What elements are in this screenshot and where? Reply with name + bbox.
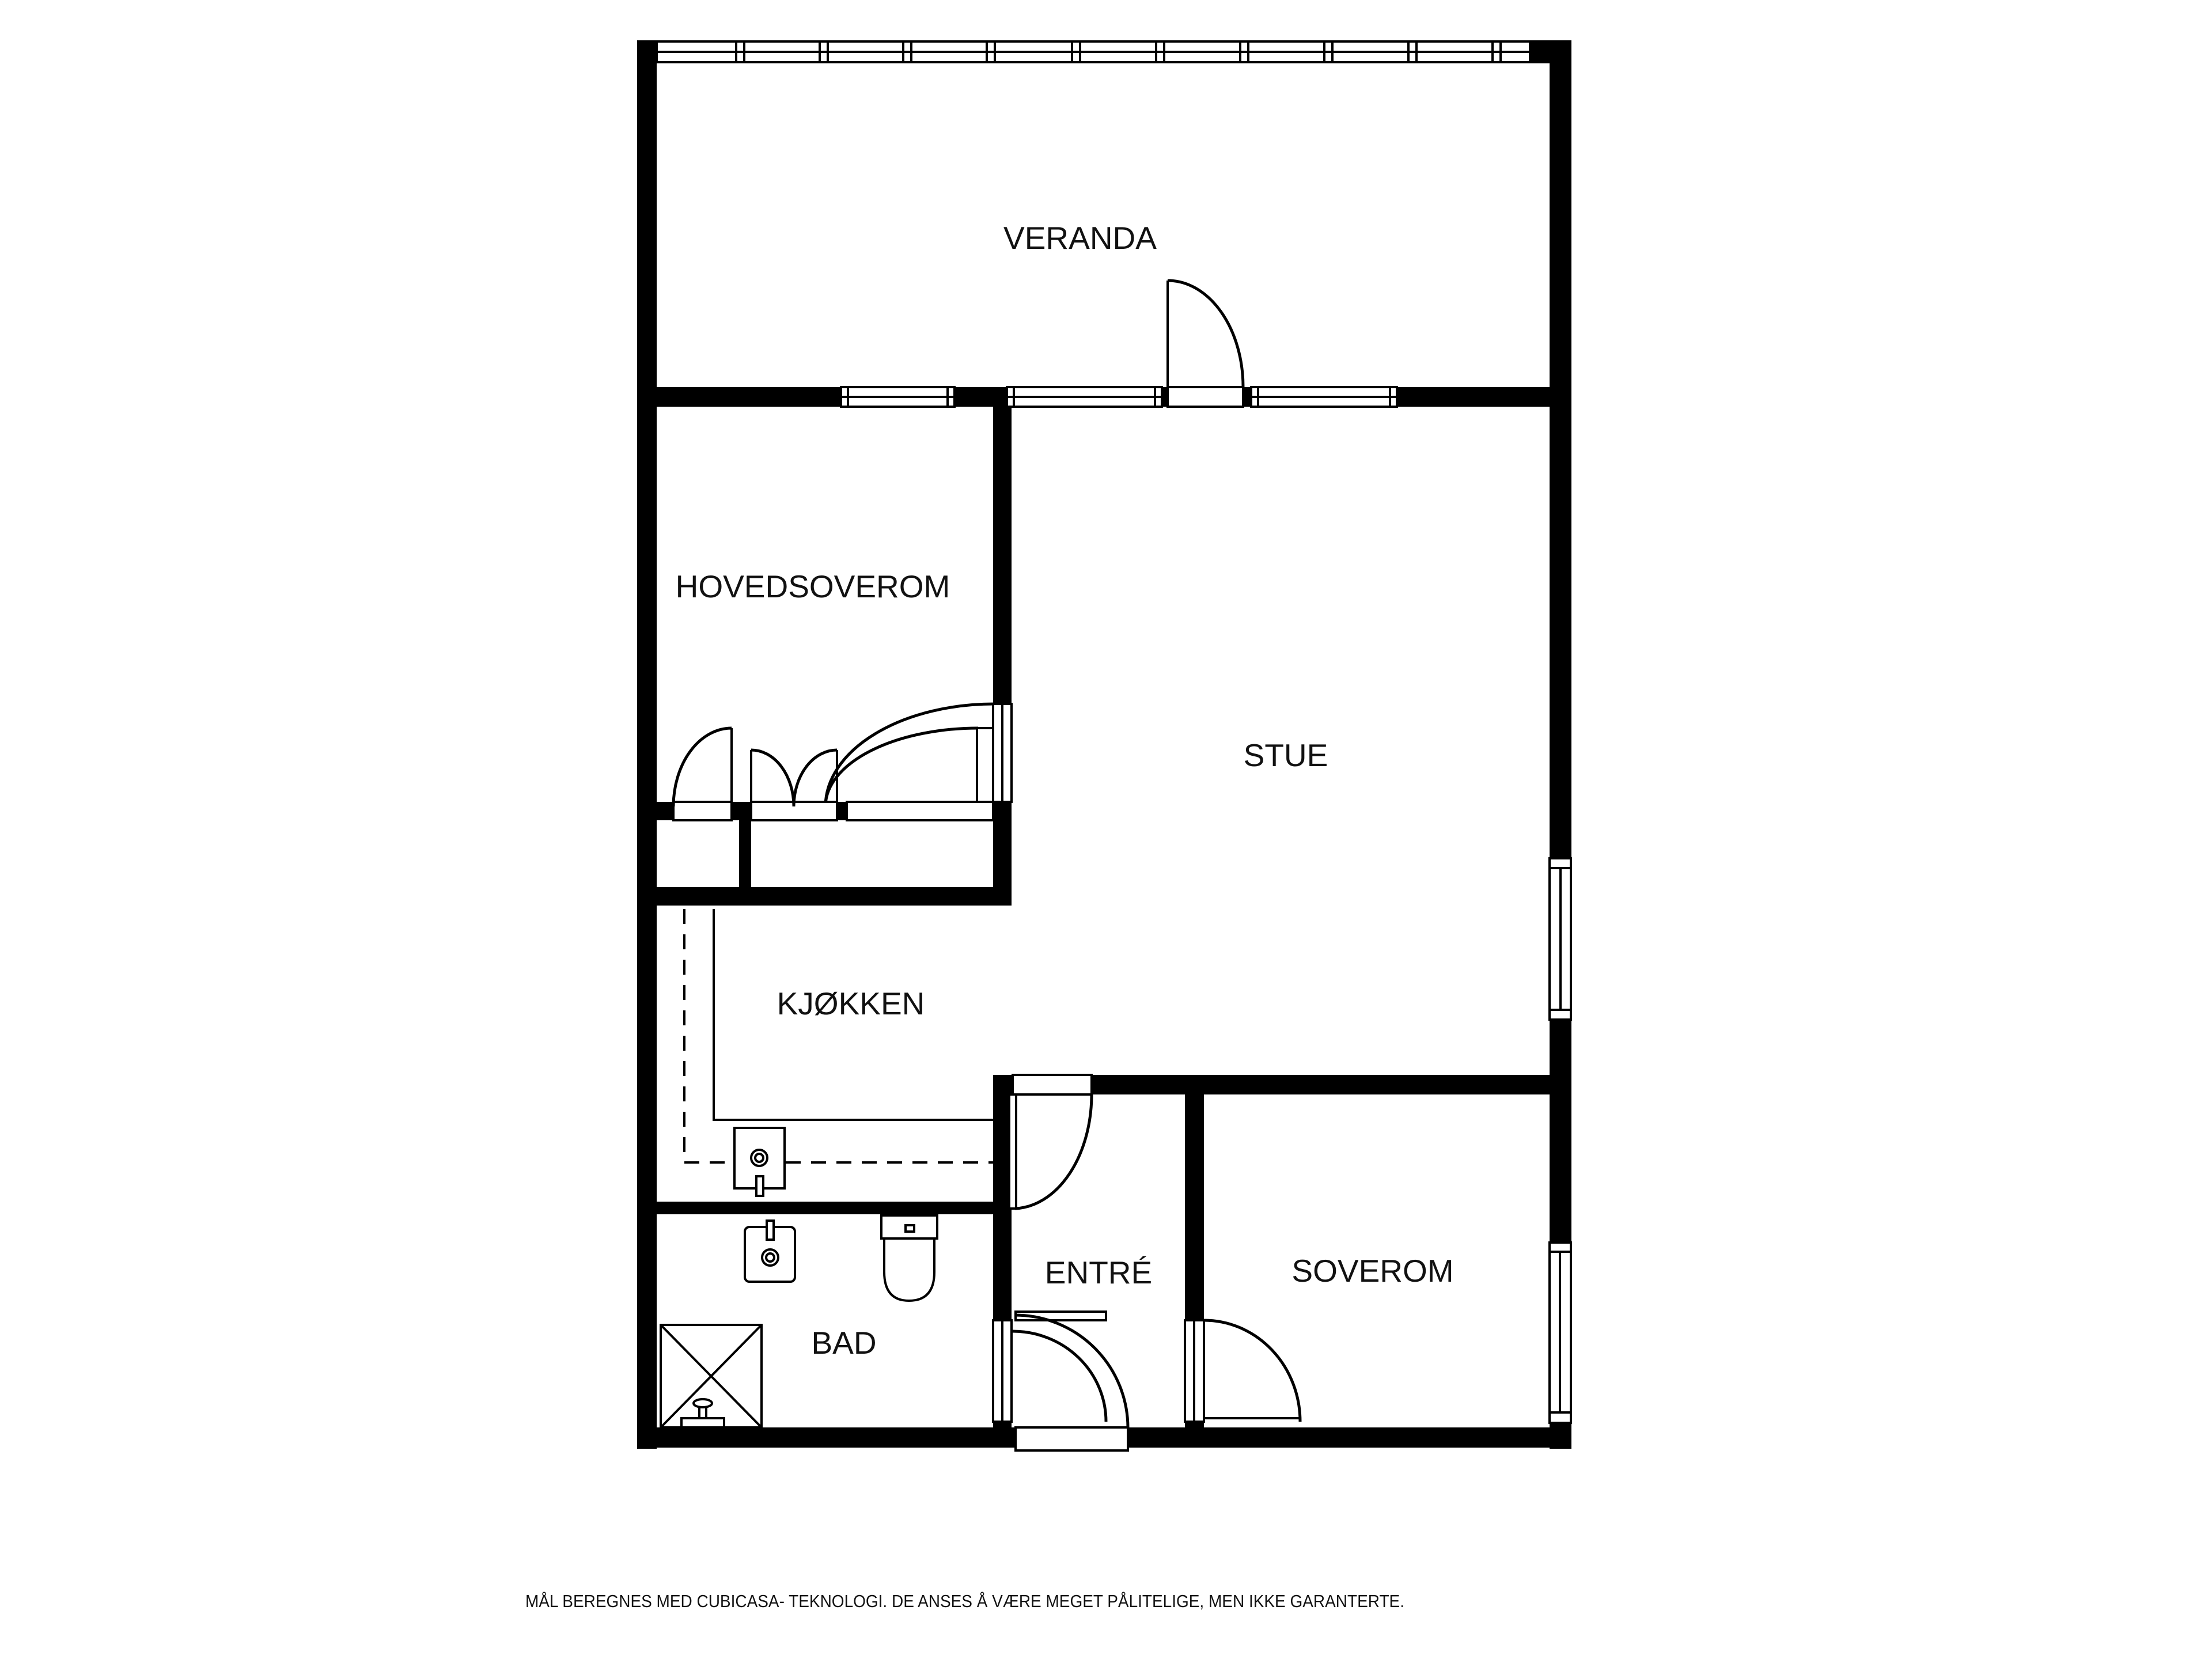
kitchen-fixtures bbox=[684, 909, 993, 1196]
room-label-stue: STUE bbox=[1244, 737, 1328, 773]
disclaimer-text: MÅL BEREGNES MED CUBICASA- TEKNOLOGI. DE… bbox=[525, 1591, 1404, 1611]
room-label-kjokken: KJØKKEN bbox=[777, 986, 925, 1021]
stue-veranda-window-a bbox=[841, 387, 955, 407]
room-label-bad: BAD bbox=[811, 1325, 876, 1361]
closet-door-left bbox=[673, 728, 732, 820]
stue-veranda-window-c bbox=[1251, 387, 1397, 407]
bathroom-fixtures bbox=[661, 1215, 937, 1427]
stue-window bbox=[1550, 858, 1571, 1020]
hovedsoverom-door bbox=[825, 704, 1012, 820]
room-label-veranda: VERANDA bbox=[1003, 220, 1157, 256]
room-label-entre: ENTRÉ bbox=[1045, 1255, 1152, 1290]
entrance-door bbox=[1016, 1315, 1128, 1450]
shower-icon bbox=[661, 1325, 762, 1427]
veranda-window-strip bbox=[657, 41, 1530, 62]
soverom-window bbox=[1550, 1243, 1571, 1423]
wall-cabinets-dashed-outline bbox=[684, 909, 993, 1162]
room-label-soverom: SOVEROM bbox=[1291, 1253, 1453, 1289]
veranda-door bbox=[1168, 281, 1243, 407]
floor-plan: VERANDA HOVEDSOVEROM STUE KJØKKEN ENTRÉ … bbox=[0, 0, 2212, 1659]
toilet-icon bbox=[881, 1215, 937, 1301]
kitchen-sink-icon bbox=[734, 1128, 785, 1196]
room-label-hovedsoverom: HOVEDSOVEROM bbox=[676, 569, 950, 604]
bathroom-sink-icon bbox=[745, 1221, 795, 1282]
bad-door bbox=[993, 1312, 1106, 1422]
stue-entre-door bbox=[1009, 1075, 1092, 1209]
closet-doors-double bbox=[751, 750, 837, 820]
floor-plan-page: VERANDA HOVEDSOVEROM STUE KJØKKEN ENTRÉ … bbox=[0, 0, 2212, 1659]
soverom-door bbox=[1185, 1320, 1300, 1422]
stue-veranda-window-b bbox=[1007, 387, 1162, 407]
